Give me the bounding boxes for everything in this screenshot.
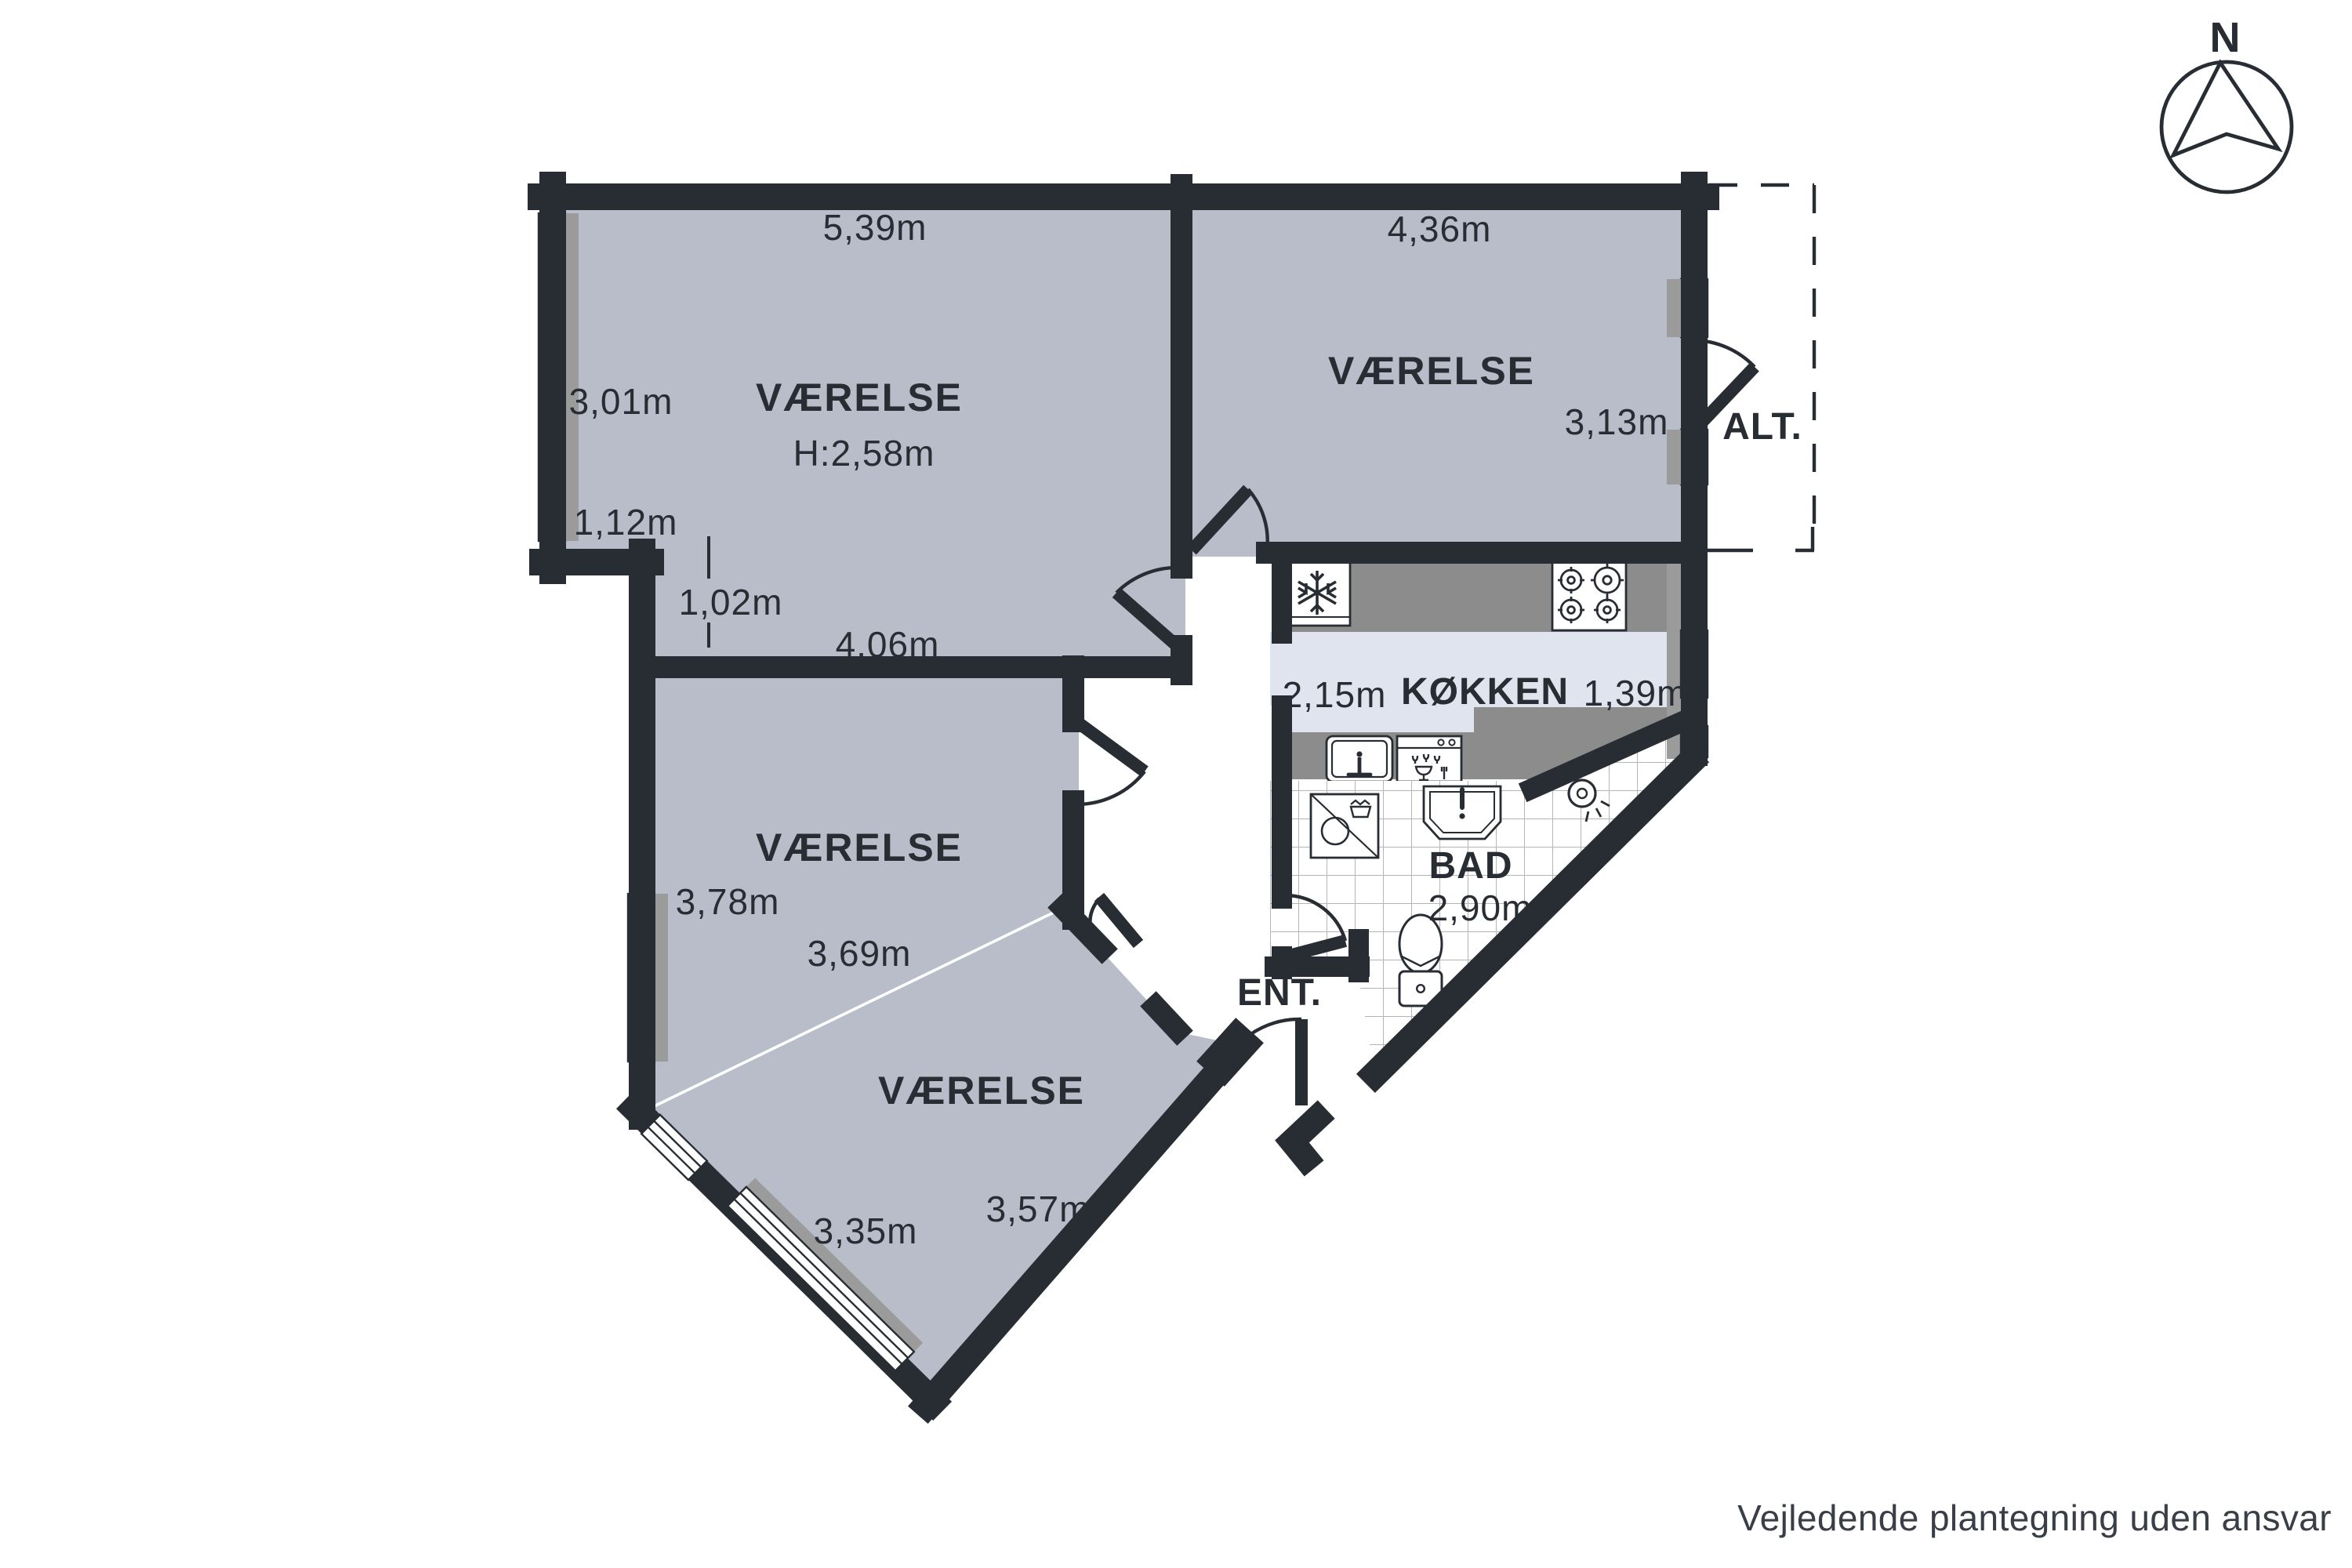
dim-369: 3,69m <box>808 933 912 974</box>
room-bottom-label: VÆRELSE <box>878 1069 1085 1112</box>
dishwasher-icon <box>1397 736 1461 782</box>
disclaimer-text: Vejledende plantegning uden ansvar <box>1737 1497 2332 1538</box>
dim-378: 3,78m <box>676 881 780 922</box>
dim-436: 4,36m <box>1388 209 1492 249</box>
dim-102: 1,02m <box>679 582 783 622</box>
room-top-right-label: VÆRELSE <box>1328 349 1535 393</box>
fridge-icon <box>1284 561 1350 626</box>
door-entrance <box>1250 1019 1301 1105</box>
stove-icon <box>1552 561 1626 630</box>
dim-357: 3,57m <box>986 1189 1091 1229</box>
bathroom-dim: 2,90m <box>1428 887 1533 928</box>
room-top-left-height: H:2,58m <box>793 433 935 474</box>
washing-machine-icon <box>1311 794 1378 858</box>
compass-label: N <box>2210 14 2241 61</box>
floor-plan-page: VÆRELSE H:2,58m 5,39m 3,01m 1,12m 1,02m … <box>0 0 2352 1568</box>
room-top-left-label: VÆRELSE <box>756 376 963 419</box>
dim-301: 3,01m <box>569 381 673 422</box>
kitchen-dim-left: 2,15m <box>1283 674 1387 715</box>
door-middle-room <box>1074 720 1145 804</box>
toilet-icon <box>1399 915 1442 1006</box>
dim-313: 3,13m <box>1565 401 1669 442</box>
balcony-label: ALT. <box>1722 406 1802 448</box>
door-bottom-room <box>1090 897 1138 952</box>
wall-se-jamb <box>1223 1044 1237 1060</box>
dim-335: 3,35m <box>814 1210 918 1251</box>
wall-entrance-lower <box>1292 1118 1317 1159</box>
bath-sink-icon <box>1424 786 1501 839</box>
kitchen-sink-icon <box>1327 736 1392 782</box>
dim-539: 5,39m <box>823 207 927 248</box>
balcony-outline <box>1706 185 1814 550</box>
dim-112: 1,12m <box>574 502 678 543</box>
kitchen-label: KØKKEN <box>1401 671 1569 713</box>
entrance-label: ENT. <box>1237 972 1322 1014</box>
room-middle-label: VÆRELSE <box>756 826 963 869</box>
compass-icon: N <box>2161 14 2292 192</box>
kitchen-dim-right: 1,39m <box>1584 673 1688 713</box>
dim-406: 4,06m <box>836 624 940 665</box>
floor-plan-drawing: VÆRELSE H:2,58m 5,39m 3,01m 1,12m 1,02m … <box>0 0 2352 1568</box>
bathroom-label: BAD <box>1429 845 1513 887</box>
